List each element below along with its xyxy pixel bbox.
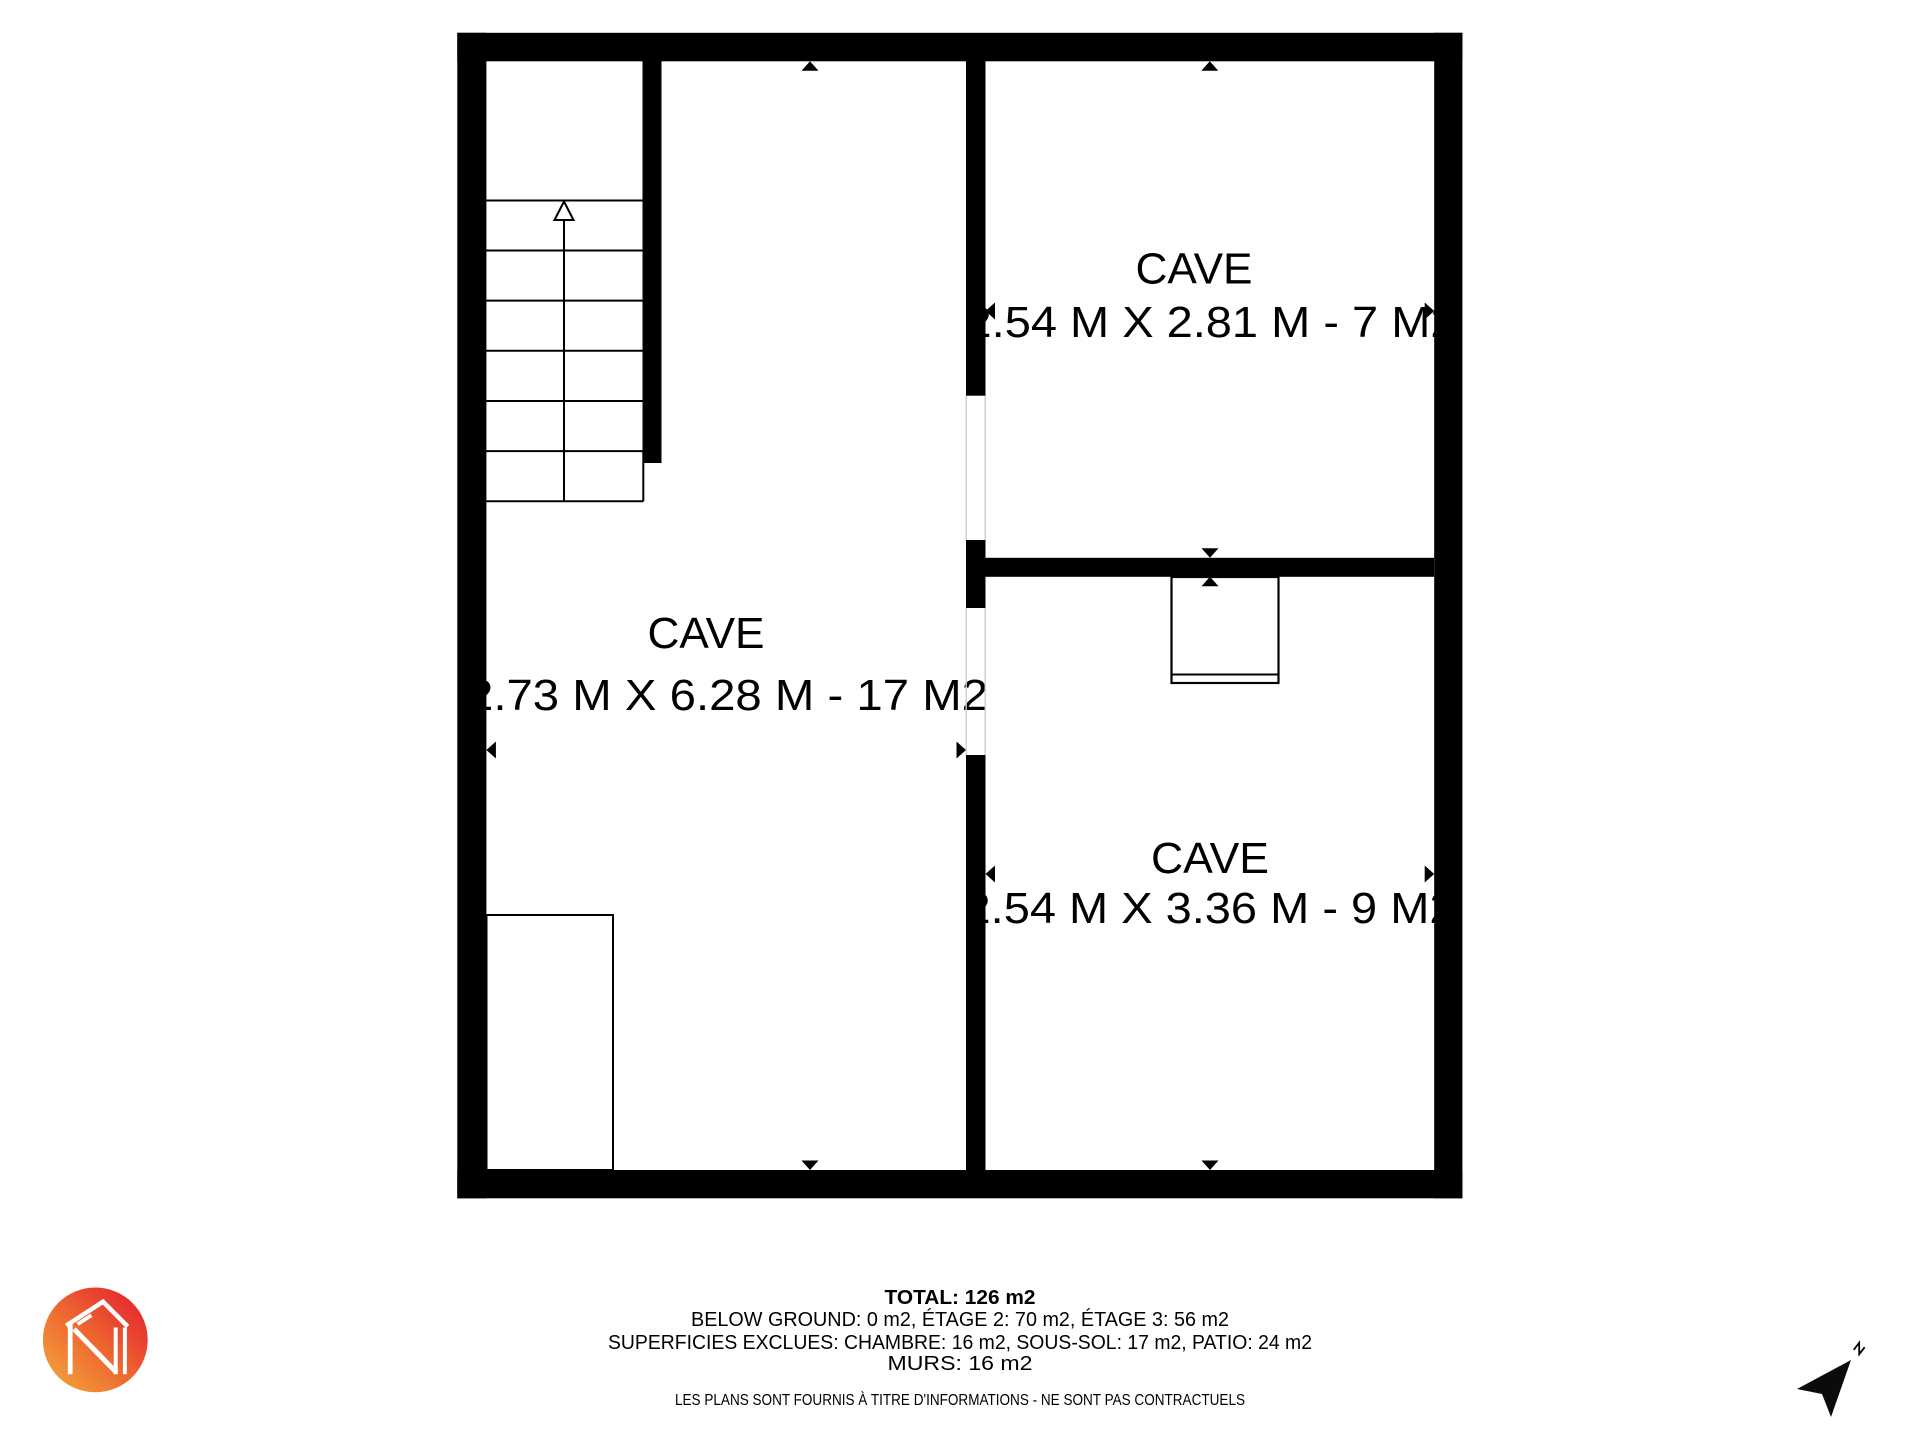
svg-text:CAVE: CAVE [1136, 246, 1253, 294]
svg-text:CAVE: CAVE [1151, 835, 1269, 883]
svg-text:LES PLANS SONT FOURNIS À TITRE: LES PLANS SONT FOURNIS À TITRE D'INFORMA… [675, 1390, 1245, 1409]
svg-text:BELOW GROUND: 0 m2, ÉTAGE 2: 7: BELOW GROUND: 0 m2, ÉTAGE 2: 70 m2, ÉTAG… [691, 1308, 1229, 1331]
svg-text:SUPERFICIES EXCLUES: CHAMBRE:: SUPERFICIES EXCLUES: CHAMBRE: 16 m2, SOU… [608, 1331, 1312, 1354]
svg-text:TOTAL: 126 m2: TOTAL: 126 m2 [885, 1286, 1036, 1309]
svg-text:2.73 M X 6.28 M - 17 M2: 2.73 M X 6.28 M - 17 M2 [467, 672, 988, 720]
svg-text:2.54 M X 3.36 M - 9 M2: 2.54 M X 3.36 M - 9 M2 [965, 885, 1456, 933]
svg-text:2.54 M X 2.81 M - 7 M2: 2.54 M X 2.81 M - 7 M2 [966, 299, 1457, 347]
svg-text:CAVE: CAVE [648, 610, 765, 658]
svg-text:MURS: 16 m2: MURS: 16 m2 [888, 1352, 1033, 1375]
